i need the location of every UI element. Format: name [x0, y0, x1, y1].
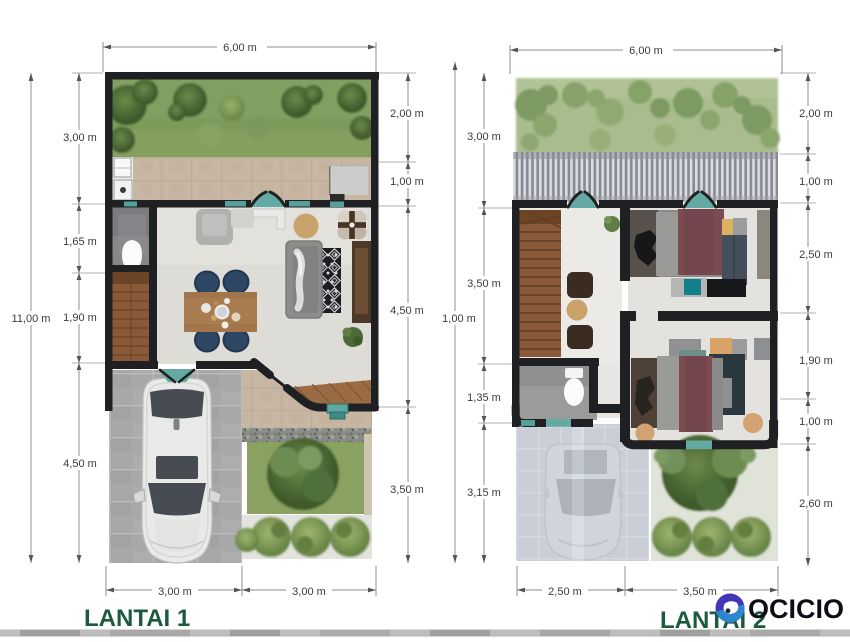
svg-text:11,00 m: 11,00 m — [12, 313, 51, 325]
svg-text:4,50 m: 4,50 m — [63, 458, 97, 470]
svg-text:3,00 m: 3,00 m — [467, 131, 501, 143]
svg-text:OCICIO: OCICIO — [748, 594, 844, 624]
svg-text:3,50 m: 3,50 m — [467, 278, 501, 290]
svg-text:1,35 m: 1,35 m — [467, 392, 501, 404]
svg-text:1,90 m: 1,90 m — [63, 312, 97, 324]
svg-text:1,00 m: 1,00 m — [799, 176, 833, 188]
svg-text:2,00 m: 2,00 m — [390, 108, 424, 120]
svg-text:6,00 m: 6,00 m — [223, 42, 257, 54]
svg-text:4,50 m: 4,50 m — [390, 305, 424, 317]
svg-text:3,00 m: 3,00 m — [292, 586, 326, 598]
svg-text:3,15 m: 3,15 m — [467, 487, 501, 499]
svg-text:3,00 m: 3,00 m — [63, 132, 97, 144]
svg-text:3,50 m: 3,50 m — [390, 484, 424, 496]
svg-text:6,00 m: 6,00 m — [629, 45, 663, 57]
svg-text:1,65 m: 1,65 m — [63, 236, 97, 248]
svg-text:2,50 m: 2,50 m — [799, 249, 833, 261]
svg-text:3,50 m: 3,50 m — [683, 586, 717, 598]
svg-text:1,90 m: 1,90 m — [799, 355, 833, 367]
svg-text:1,00 m: 1,00 m — [799, 416, 833, 428]
svg-text:1,00 m: 1,00 m — [390, 176, 424, 188]
svg-text:1,00 m: 1,00 m — [442, 313, 476, 325]
svg-text:2,00 m: 2,00 m — [799, 108, 833, 120]
svg-text:2,50 m: 2,50 m — [548, 586, 582, 598]
svg-text:LANTAI 1: LANTAI 1 — [84, 605, 190, 632]
svg-text:2,60 m: 2,60 m — [799, 498, 833, 510]
svg-text:3,00 m: 3,00 m — [158, 586, 192, 598]
